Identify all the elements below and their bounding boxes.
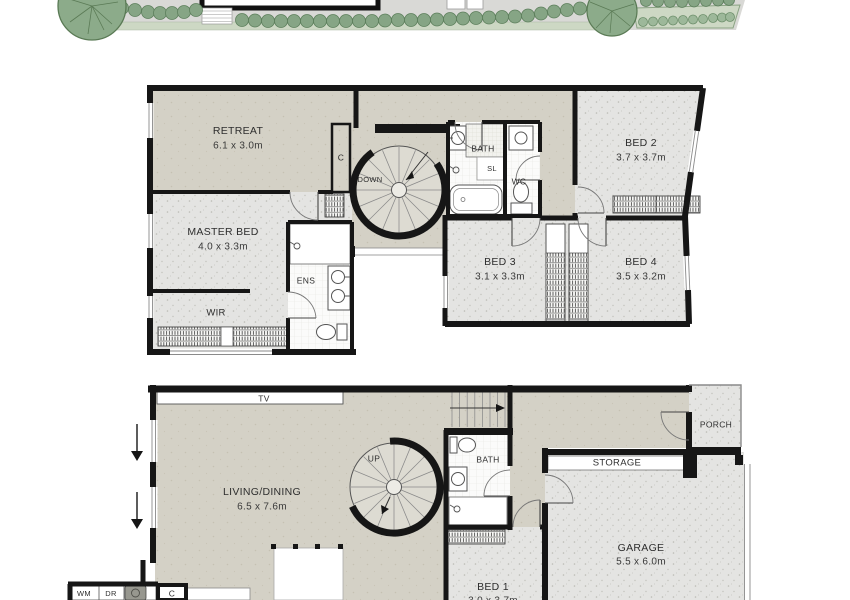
room-label-porch: PORCH — [700, 419, 732, 429]
room-label-retreat: RETREAT — [213, 125, 264, 137]
vanity-double-basin-icon — [328, 266, 350, 310]
porch-floor — [689, 385, 741, 447]
garage-floor — [545, 452, 744, 600]
upper-floor-plan: RETREAT 6.1 x 3.0m C DOWN BATH SL WC BED… — [147, 85, 704, 356]
site-plan — [58, 0, 745, 40]
void-balustrade — [347, 246, 447, 257]
ens-toilet-icon — [317, 324, 348, 340]
room-dims-bed4: 3.5 x 3.2m — [616, 272, 666, 283]
room-label-bed2: BED 2 — [625, 137, 657, 149]
wardrobe-icon-bed1 — [448, 530, 505, 544]
room-label-bed1: BED 1 — [477, 581, 509, 593]
wardrobe-icon-bed4 — [569, 224, 588, 322]
tv-unit — [157, 391, 343, 404]
room-label-ens: ENS — [297, 275, 315, 285]
stair-label-down: DOWN — [358, 175, 383, 184]
furniture-block — [178, 588, 250, 600]
tree-icon-right — [587, 0, 637, 36]
tree-icon-left — [58, 0, 126, 40]
room-label-master: MASTER BED — [187, 226, 258, 238]
label-skylight: SL — [487, 164, 497, 173]
room-label-bed3: BED 3 — [484, 256, 516, 268]
bathtub-icon — [450, 185, 502, 214]
room-label-living: LIVING/DINING — [223, 486, 301, 498]
room-dims-living: 6.5 x 7.6m — [237, 502, 287, 513]
room-label-garage: GARAGE — [618, 542, 665, 554]
label-washing-machine: WM — [77, 589, 91, 598]
label-dryer: DR — [105, 589, 117, 598]
entry-arrow-icons — [131, 424, 143, 529]
floorplan-drawing: RETREAT 6.1 x 3.0m C DOWN BATH SL WC BED… — [0, 0, 850, 600]
spiral-staircase-up-icon — [350, 441, 440, 533]
room-label-bath-upper: BATH — [471, 143, 494, 153]
room-dims-bed2: 3.7 x 3.7m — [616, 153, 666, 164]
ground-floor-plan: TV LIVING/DINING 6.5 x 7.6m UP BATH STOR… — [68, 385, 750, 600]
garden-structure — [447, 0, 483, 9]
dryer-icon — [125, 586, 146, 600]
label-laundry-cupboard: C — [169, 588, 175, 598]
deck-bay — [271, 544, 343, 600]
room-dims-bed1: 3.0 x 3.7m — [468, 596, 518, 600]
toilet-icon-ground — [450, 437, 476, 453]
room-dims-retreat: 6.1 x 3.0m — [213, 141, 263, 152]
wardrobe-icon-wir — [158, 327, 288, 346]
room-label-bath-ground: BATH — [476, 454, 499, 464]
floorplan-page: RETREAT 6.1 x 3.0m C DOWN BATH SL WC BED… — [0, 0, 850, 600]
wc-basin-icon — [515, 132, 527, 144]
building-footprint — [202, 0, 378, 8]
room-label-storage: STORAGE — [593, 458, 641, 469]
room-dims-garage: 5.5 x 6.0m — [616, 557, 666, 568]
stair-label-up: UP — [368, 453, 380, 463]
basin-icon — [452, 132, 465, 145]
room-label-wir: WIR — [206, 308, 225, 319]
label-tv: TV — [258, 393, 269, 403]
shower-icon-ground — [449, 497, 507, 528]
garden-steps — [202, 8, 232, 24]
room-dims-bed3: 3.1 x 3.3m — [475, 272, 525, 283]
room-label-cupboard: C — [338, 152, 344, 162]
room-dims-master: 4.0 x 3.3m — [198, 242, 248, 253]
linen-cupboard — [325, 194, 344, 217]
room-label-wc: WC — [512, 176, 527, 186]
wardrobe-icon-bed3 — [546, 224, 565, 322]
room-label-bed4: BED 4 — [625, 256, 657, 268]
